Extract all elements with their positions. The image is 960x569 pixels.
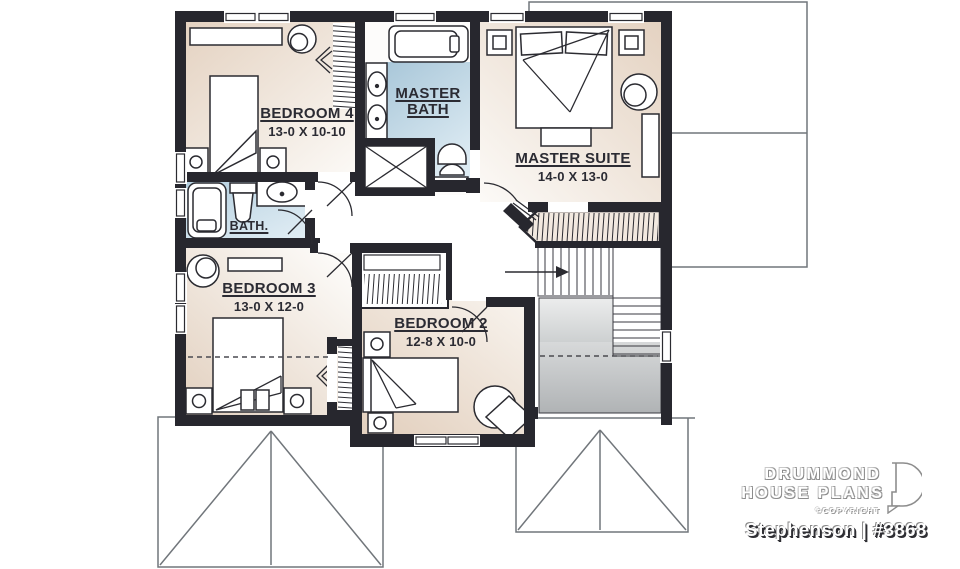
window-left-bedroom4 bbox=[174, 152, 187, 184]
bedroom4-bed bbox=[210, 76, 258, 177]
bedroom4-dresser bbox=[190, 28, 282, 45]
window-master-bath-top bbox=[394, 11, 436, 23]
master-suite-dresser bbox=[642, 114, 659, 177]
drummond-logo-icon bbox=[884, 460, 922, 514]
brand-name-line2: HOUSE PLANS bbox=[741, 485, 884, 503]
window-bedroom4-top bbox=[224, 11, 290, 23]
stairwell-open-dark bbox=[539, 342, 661, 413]
window-left-bedroom3-2 bbox=[174, 304, 187, 334]
bedroom4-chair bbox=[288, 25, 316, 53]
roof-outline-bottom-right bbox=[516, 418, 695, 532]
window-left-bedroom3-1 bbox=[174, 272, 187, 303]
bedroom2-closet bbox=[358, 250, 448, 308]
window-bedroom2-bottom bbox=[414, 435, 480, 446]
master-bath-sinks bbox=[366, 63, 387, 139]
bedroom3-dresser bbox=[228, 258, 282, 271]
bedroom4-door bbox=[318, 182, 352, 216]
bedroom3-chair bbox=[187, 255, 219, 287]
roof-outline-bottom-left bbox=[158, 417, 383, 567]
hall-bath-sink bbox=[257, 180, 307, 206]
bedroom3-bed bbox=[213, 318, 283, 412]
bedroom2-bed bbox=[363, 358, 458, 412]
master-suite-bench bbox=[541, 128, 591, 146]
window-left-bath bbox=[174, 188, 187, 218]
master-suite-chair bbox=[621, 74, 657, 110]
floor-plan-page: BEDROOM 4 13-0 X 10-10 MASTER BATH MASTE… bbox=[0, 0, 960, 569]
stairwell-open-light bbox=[539, 298, 613, 342]
window-master-suite-top-1 bbox=[489, 11, 525, 23]
master-bath-tub bbox=[389, 26, 468, 62]
master-suite-closet bbox=[520, 211, 660, 243]
hall-bath-tub bbox=[188, 183, 226, 238]
brand-name-line1: DRUMMOND bbox=[765, 466, 882, 484]
hall-upper-b2 bbox=[452, 253, 524, 301]
window-master-suite-top-2 bbox=[608, 11, 644, 23]
window-right-stairs bbox=[660, 330, 673, 363]
plan-name-number: Stephenson | #3868 bbox=[745, 519, 927, 541]
master-suite-bed bbox=[516, 27, 612, 128]
brand-copyright: ©COPYRIGHT bbox=[815, 506, 880, 515]
linen-closet-xbox bbox=[365, 146, 427, 188]
